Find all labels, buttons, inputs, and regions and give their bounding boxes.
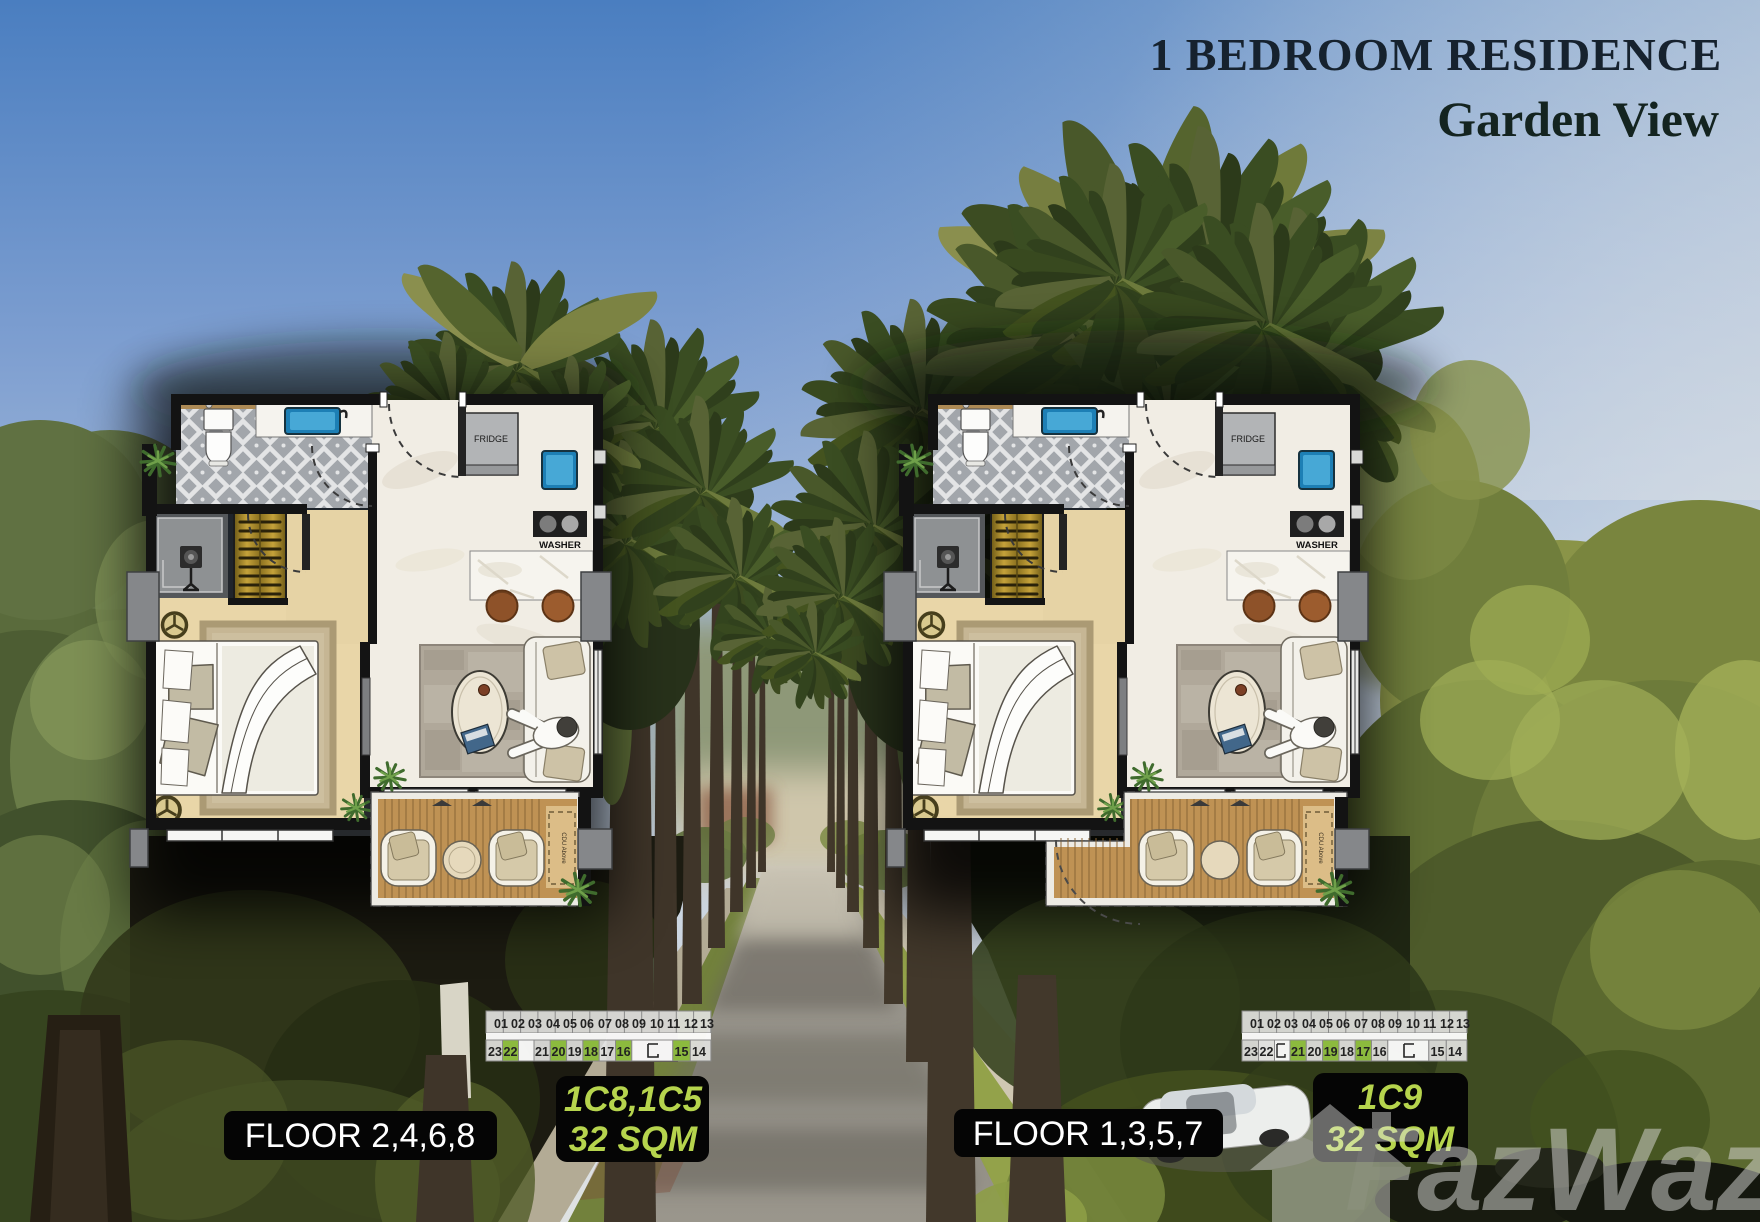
svg-text:11: 11 [1423,1017,1436,1031]
svg-text:05: 05 [563,1017,577,1031]
svg-text:09: 09 [1388,1017,1402,1031]
svg-text:FazWaz: FazWaz [1345,1104,1760,1222]
svg-text:1 BEDROOM RESIDENCE: 1 BEDROOM RESIDENCE [1150,29,1722,80]
svg-text:15: 15 [675,1045,689,1059]
svg-text:19: 19 [1324,1045,1338,1059]
svg-text:1C8,1C5: 1C8,1C5 [564,1080,703,1119]
svg-text:21: 21 [535,1045,549,1059]
svg-text:23: 23 [488,1045,502,1059]
svg-text:18: 18 [1340,1045,1354,1059]
svg-text:10: 10 [1406,1017,1420,1031]
svg-text:04: 04 [1302,1017,1316,1031]
svg-text:13: 13 [700,1017,714,1031]
svg-text:01: 01 [494,1017,508,1031]
svg-text:17: 17 [1356,1045,1370,1059]
svg-text:03: 03 [1284,1017,1298,1031]
svg-text:22: 22 [504,1045,518,1059]
svg-text:08: 08 [615,1017,629,1031]
svg-text:17: 17 [600,1045,614,1059]
svg-text:15: 15 [1431,1045,1445,1059]
svg-text:21: 21 [1291,1045,1305,1059]
svg-text:01: 01 [1250,1017,1264,1031]
svg-text:14: 14 [1448,1045,1462,1059]
svg-text:03: 03 [528,1017,542,1031]
svg-text:FLOOR 1,3,5,7: FLOOR 1,3,5,7 [973,1115,1204,1153]
svg-text:CDU Above: CDU Above [560,832,566,864]
svg-text:05: 05 [1319,1017,1333,1031]
svg-text:08: 08 [1371,1017,1385,1031]
svg-text:32 SQM: 32 SQM [569,1120,698,1159]
svg-text:02: 02 [511,1017,525,1031]
svg-text:20: 20 [1308,1045,1322,1059]
svg-text:06: 06 [1336,1017,1350,1031]
svg-text:16: 16 [1373,1045,1387,1059]
svg-text:23: 23 [1244,1045,1258,1059]
svg-text:FLOOR 2,4,6,8: FLOOR 2,4,6,8 [245,1117,476,1155]
svg-text:09: 09 [632,1017,646,1031]
svg-text:12: 12 [1440,1017,1454,1031]
svg-text:18: 18 [584,1045,598,1059]
svg-text:02: 02 [1267,1017,1281,1031]
svg-text:CDU Above: CDU Above [1317,832,1323,864]
svg-text:16: 16 [617,1045,631,1059]
svg-text:06: 06 [580,1017,594,1031]
svg-text:19: 19 [568,1045,582,1059]
svg-text:07: 07 [1354,1017,1368,1031]
svg-text:04: 04 [546,1017,560,1031]
svg-text:22: 22 [1260,1045,1274,1059]
svg-text:20: 20 [552,1045,566,1059]
svg-text:10: 10 [650,1017,664,1031]
svg-text:07: 07 [598,1017,612,1031]
svg-text:14: 14 [692,1045,706,1059]
svg-text:13: 13 [1456,1017,1470,1031]
svg-text:12: 12 [684,1017,698,1031]
svg-text:Garden View: Garden View [1437,91,1719,147]
svg-text:11: 11 [667,1017,680,1031]
